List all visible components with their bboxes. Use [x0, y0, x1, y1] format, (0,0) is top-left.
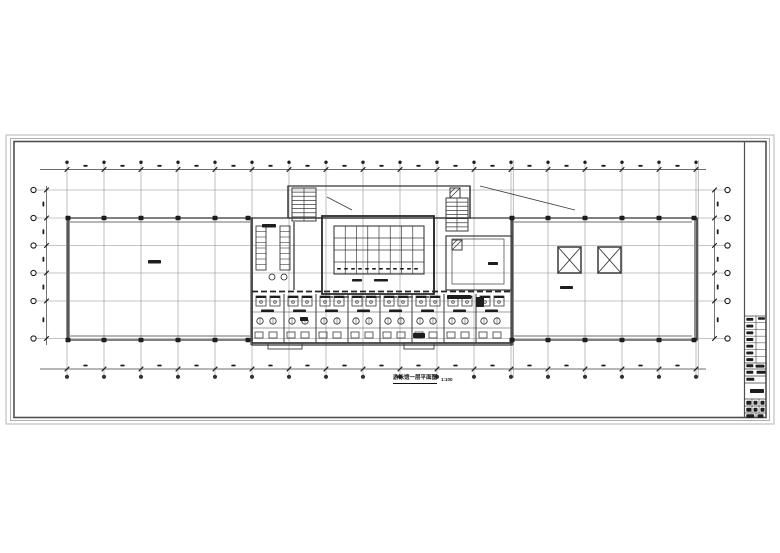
- dim-text-bottom: [490, 365, 494, 367]
- dim-text-top: [453, 165, 457, 167]
- fixture-rect: [333, 332, 341, 338]
- column-square: [246, 338, 251, 343]
- dim-text-left: [43, 317, 45, 322]
- titleblock-label: [746, 345, 753, 348]
- titleblock-label: [746, 358, 753, 361]
- dim-text-right: [717, 257, 719, 262]
- dim-text-bottom: [157, 365, 161, 367]
- titleblock-text: [758, 414, 764, 418]
- dim-text-top: [527, 165, 531, 167]
- wall-outline: [404, 343, 434, 349]
- grid-bubble-top: [250, 161, 253, 164]
- dim-text-left: [43, 202, 45, 207]
- dim-text-bottom: [231, 365, 235, 367]
- pool-tick: [358, 268, 362, 270]
- dim-text-bottom: [342, 365, 346, 367]
- pool-tick: [351, 268, 355, 270]
- grid-bubble-top: [472, 161, 475, 164]
- pool-tick: [337, 268, 341, 270]
- stall-top: [334, 296, 344, 298]
- column-square: [657, 338, 662, 343]
- column-square: [102, 216, 107, 221]
- column-square: [583, 216, 588, 221]
- grid-bubble-top: [620, 161, 623, 164]
- room-label: [352, 279, 362, 282]
- leader-line: [327, 197, 352, 210]
- dim-text-bottom: [83, 365, 87, 367]
- dim-text-bottom: [638, 365, 642, 367]
- dim-text-top: [305, 165, 309, 167]
- stall-top: [256, 296, 266, 298]
- titleblock-text: [757, 371, 766, 374]
- titleblock-text: [750, 389, 764, 393]
- grid-bubble-bottom: [102, 375, 106, 379]
- titleblock-label: [746, 351, 753, 354]
- fixture-rect: [255, 332, 263, 338]
- cad-floorplan-drawing: [0, 0, 780, 553]
- grid-bubble-bottom: [65, 375, 69, 379]
- stall-top: [430, 296, 440, 298]
- pool-tick: [407, 268, 411, 270]
- dim-text-left: [43, 285, 45, 290]
- grid-bubble-top: [139, 161, 142, 164]
- grid-bubble-left: [31, 270, 36, 275]
- column-square: [657, 216, 662, 221]
- pool-tick: [372, 268, 376, 270]
- grid-bubble-top: [657, 161, 660, 164]
- titleblock-label: [746, 325, 753, 328]
- fixture-rect: [287, 332, 295, 338]
- grid-bubble-top: [694, 161, 697, 164]
- pool-tick: [393, 268, 397, 270]
- dim-text-bottom: [194, 365, 198, 367]
- dark-detail: [413, 333, 425, 338]
- dim-text-right: [717, 285, 719, 290]
- drawing-scale-text: 1:100: [441, 378, 453, 384]
- dim-text-top: [379, 165, 383, 167]
- hatch-line: [452, 240, 457, 245]
- dim-text-right: [717, 317, 719, 322]
- grid-bubble-top: [65, 161, 68, 164]
- stall-top: [366, 296, 376, 298]
- grid-bubble-top: [509, 161, 512, 164]
- dim-text-bottom: [416, 365, 420, 367]
- titleblock-text: [754, 401, 758, 405]
- stall-top: [398, 296, 408, 298]
- pool-tick: [386, 268, 390, 270]
- dim-text-top: [157, 165, 161, 167]
- dim-text-bottom: [564, 365, 568, 367]
- dim-text-top: [675, 165, 679, 167]
- bay-label: [293, 310, 306, 313]
- column-square: [546, 216, 551, 221]
- column-square: [66, 338, 71, 343]
- drawing-sheet: 游泳馆一层平面图 1:100: [0, 0, 780, 553]
- room-label: [262, 224, 276, 228]
- grid-bubble-bottom: [472, 375, 476, 379]
- dim-text-top: [342, 165, 346, 167]
- dim-text-top: [564, 165, 568, 167]
- fixture-rect: [447, 332, 455, 338]
- fixture-rect: [397, 332, 405, 338]
- grid-bubble-bottom: [361, 375, 365, 379]
- dim-text-right: [717, 229, 719, 234]
- wall-outline: [446, 236, 512, 290]
- dim-text-top: [83, 165, 87, 167]
- grid-bubble-top: [361, 161, 364, 164]
- column-square: [510, 216, 515, 221]
- titleblock-text: [746, 408, 751, 412]
- titleblock-text: [758, 317, 765, 320]
- dim-text-bottom: [379, 365, 383, 367]
- frame-mid-border: [11, 139, 770, 421]
- column-square: [176, 216, 181, 221]
- hatch-line: [452, 240, 462, 250]
- dim-text-bottom: [268, 365, 272, 367]
- titleblock-text: [754, 408, 758, 412]
- column-square: [66, 216, 71, 221]
- grid-bubble-left: [31, 336, 36, 341]
- room-label: [488, 262, 498, 265]
- fixture-rect: [383, 332, 391, 338]
- stall-top: [302, 296, 312, 298]
- dim-text-bottom: [675, 365, 679, 367]
- wall-outline: [288, 186, 470, 218]
- wall-outline: [512, 218, 697, 340]
- dim-text-left: [43, 229, 45, 234]
- column-square: [546, 338, 551, 343]
- dim-text-top: [231, 165, 235, 167]
- grid-bubble-bottom: [287, 375, 291, 379]
- drawing-title: 游泳馆一层平面图 1:100: [393, 376, 453, 384]
- grid-bubble-top: [435, 161, 438, 164]
- hatch-line: [450, 188, 460, 198]
- fixture-rect: [351, 332, 359, 338]
- bay-label: [485, 310, 498, 313]
- grid-bubble-bottom: [139, 375, 143, 379]
- dim-text-bottom: [527, 365, 531, 367]
- fixture-rect: [301, 332, 309, 338]
- bay-label: [453, 310, 466, 313]
- grid-bubble-bottom: [213, 375, 217, 379]
- frame-inner-border: [14, 142, 766, 418]
- grid-bubble-left: [31, 243, 36, 248]
- column-square: [692, 216, 697, 221]
- grid-bubble-bottom: [583, 375, 587, 379]
- grid-bubble-top: [583, 161, 586, 164]
- column-square: [620, 338, 625, 343]
- grid-bubble-top: [102, 161, 105, 164]
- stall-top: [416, 296, 426, 298]
- room-label: [374, 279, 388, 282]
- drawing-title-text: 游泳馆一层平面图: [393, 376, 437, 384]
- dim-text-top: [601, 165, 605, 167]
- titleblock-text: [761, 408, 765, 412]
- titleblock-label: [746, 331, 753, 334]
- fixture-rect: [461, 332, 469, 338]
- dim-text-top: [120, 165, 124, 167]
- titleblock-text: [746, 414, 754, 418]
- fixture-circle: [281, 274, 287, 280]
- room-label: [148, 260, 161, 264]
- grid-bubble-top: [287, 161, 290, 164]
- pool-tick: [344, 268, 348, 270]
- column-square: [213, 338, 218, 343]
- column-square: [176, 338, 181, 343]
- grid-bubble-left: [31, 298, 36, 303]
- pool-tick: [379, 268, 383, 270]
- titleblock-text: [746, 364, 753, 367]
- dark-detail: [300, 317, 308, 321]
- room-label: [560, 286, 573, 289]
- stall-top: [352, 296, 362, 298]
- hatch-line: [450, 188, 455, 193]
- dim-text-bottom: [305, 365, 309, 367]
- bay-label: [325, 310, 338, 313]
- stall-top: [270, 296, 280, 298]
- fixture-rect: [429, 332, 437, 338]
- dim-text-top: [194, 165, 198, 167]
- dim-text-top: [638, 165, 642, 167]
- bay-label: [421, 310, 434, 313]
- column-square: [510, 338, 515, 343]
- grid-bubble-left: [31, 187, 36, 192]
- pool-tick: [400, 268, 404, 270]
- dim-text-bottom: [120, 365, 124, 367]
- grid-bubble-bottom: [509, 375, 513, 379]
- grid-bubble-top: [213, 161, 216, 164]
- pool-tick: [414, 268, 418, 270]
- column-square: [139, 338, 144, 343]
- grid-bubble-bottom: [546, 375, 550, 379]
- fixture-rect: [493, 332, 501, 338]
- grid-bubble-bottom: [694, 375, 698, 379]
- leader-line: [480, 186, 575, 210]
- grid-bubble-left: [31, 215, 36, 220]
- grid-bubble-top: [176, 161, 179, 164]
- dim-text-right: [717, 202, 719, 207]
- dark-detail: [447, 295, 471, 299]
- grid-bubble-bottom: [250, 375, 254, 379]
- page: 游泳馆一层平面图 1:100: [0, 0, 780, 553]
- stall-top: [494, 296, 504, 298]
- column-square: [102, 338, 107, 343]
- titleblock-text: [756, 365, 765, 368]
- column-square: [692, 338, 697, 343]
- dim-text-top: [416, 165, 420, 167]
- bay-label: [389, 310, 402, 313]
- column-square: [583, 338, 588, 343]
- wall-outline: [68, 218, 252, 340]
- grid-bubble-bottom: [620, 375, 624, 379]
- wall-outline: [268, 343, 302, 349]
- dim-text-left: [43, 257, 45, 262]
- dim-text-bottom: [601, 365, 605, 367]
- titleblock-text: [746, 378, 754, 381]
- fixture-rect: [479, 332, 487, 338]
- dim-text-top: [490, 165, 494, 167]
- stall-top: [320, 296, 330, 298]
- titleblock-text: [746, 401, 751, 405]
- titleblock-label: [746, 338, 753, 341]
- titleblock-label: [746, 318, 753, 321]
- fixture-rect: [269, 332, 277, 338]
- bay-label: [261, 310, 274, 313]
- grid-bubble-top: [398, 161, 401, 164]
- column-square: [213, 216, 218, 221]
- pool-hall-wall: [322, 216, 434, 294]
- grid-bubble-top: [324, 161, 327, 164]
- grid-bubble-bottom: [657, 375, 661, 379]
- stall-top: [384, 296, 394, 298]
- grid-bubble-top: [546, 161, 549, 164]
- dim-text-bottom: [453, 365, 457, 367]
- grid-bubble-bottom: [324, 375, 328, 379]
- stall-top: [288, 296, 298, 298]
- fixture-circle: [269, 274, 275, 280]
- dark-detail: [476, 297, 484, 307]
- titleblock-text: [746, 371, 753, 374]
- pool-tick: [365, 268, 369, 270]
- bay-label: [357, 310, 370, 313]
- titleblock-text: [761, 401, 765, 405]
- grid-bubble-bottom: [176, 375, 180, 379]
- dim-text-top: [268, 165, 272, 167]
- column-square: [139, 216, 144, 221]
- fixture-rect: [365, 332, 373, 338]
- column-square: [620, 216, 625, 221]
- column-square: [246, 216, 251, 221]
